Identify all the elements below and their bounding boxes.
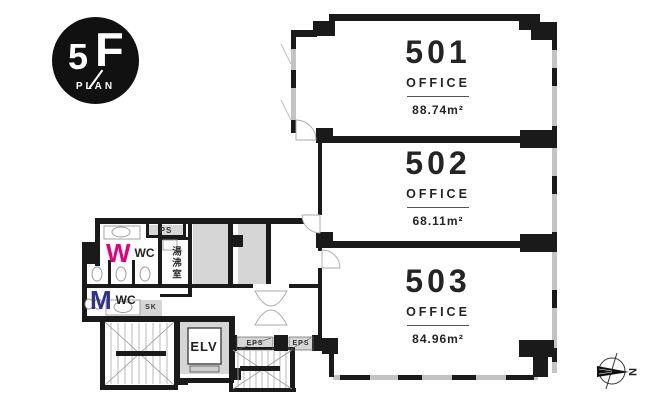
unit-type: OFFICE [375, 305, 501, 319]
stairwell-secondary [233, 350, 292, 389]
window-casement-marks [281, 44, 291, 120]
womens-wc-label: WWC [106, 240, 155, 266]
double-door-upper-leaf [255, 291, 287, 306]
eps-left-label: EPS [238, 340, 272, 347]
unit-area: 68.11m² [375, 214, 501, 228]
double-door-lower-leaf [255, 310, 287, 325]
mens-wc-text: WC [116, 293, 136, 307]
unit-divider-line [407, 207, 469, 208]
unit-number: 502 [375, 147, 501, 179]
mens-wc-label: MWC [90, 287, 136, 313]
unit-number: 503 [375, 265, 501, 297]
compass-north-label: N [626, 368, 638, 376]
unit-number: 501 [375, 36, 501, 68]
unit-type: OFFICE [375, 187, 501, 201]
badge-plan-label: PLAN [52, 81, 139, 92]
floor-badge: 5 F PLAN [52, 17, 139, 104]
unit-divider-line [407, 96, 469, 97]
slop-sink-label: SK [140, 304, 162, 311]
mens-wc-initial: M [90, 285, 112, 315]
elevator-label: ELV [181, 339, 227, 354]
stairwell-main [105, 322, 174, 385]
unit-area: 88.74m² [375, 103, 501, 117]
unit-divider-line [407, 325, 469, 326]
unit-label-501: 501 OFFICE 88.74m² [375, 36, 501, 117]
unit-label-503: 503 OFFICE 84.96m² [375, 265, 501, 346]
floor-letter: F [95, 26, 124, 73]
unit-type: OFFICE [375, 76, 501, 90]
womens-wc-initial: W [106, 238, 131, 268]
floor-number: 5 [68, 39, 88, 75]
womens-wc-text: WC [135, 246, 155, 260]
pipe-space-label: PS [149, 226, 183, 235]
unit-area: 84.96m² [375, 332, 501, 346]
unit-label-502: 502 OFFICE 68.11m² [375, 147, 501, 228]
eps-right-label: EPS [289, 340, 313, 347]
floor-plan-page: N 5 F PLAN 501 OFFICE 88.74m² 502 OFFICE… [0, 0, 650, 400]
kitchenette-label: 湯沸室 [168, 246, 182, 281]
compass: N [597, 353, 638, 389]
